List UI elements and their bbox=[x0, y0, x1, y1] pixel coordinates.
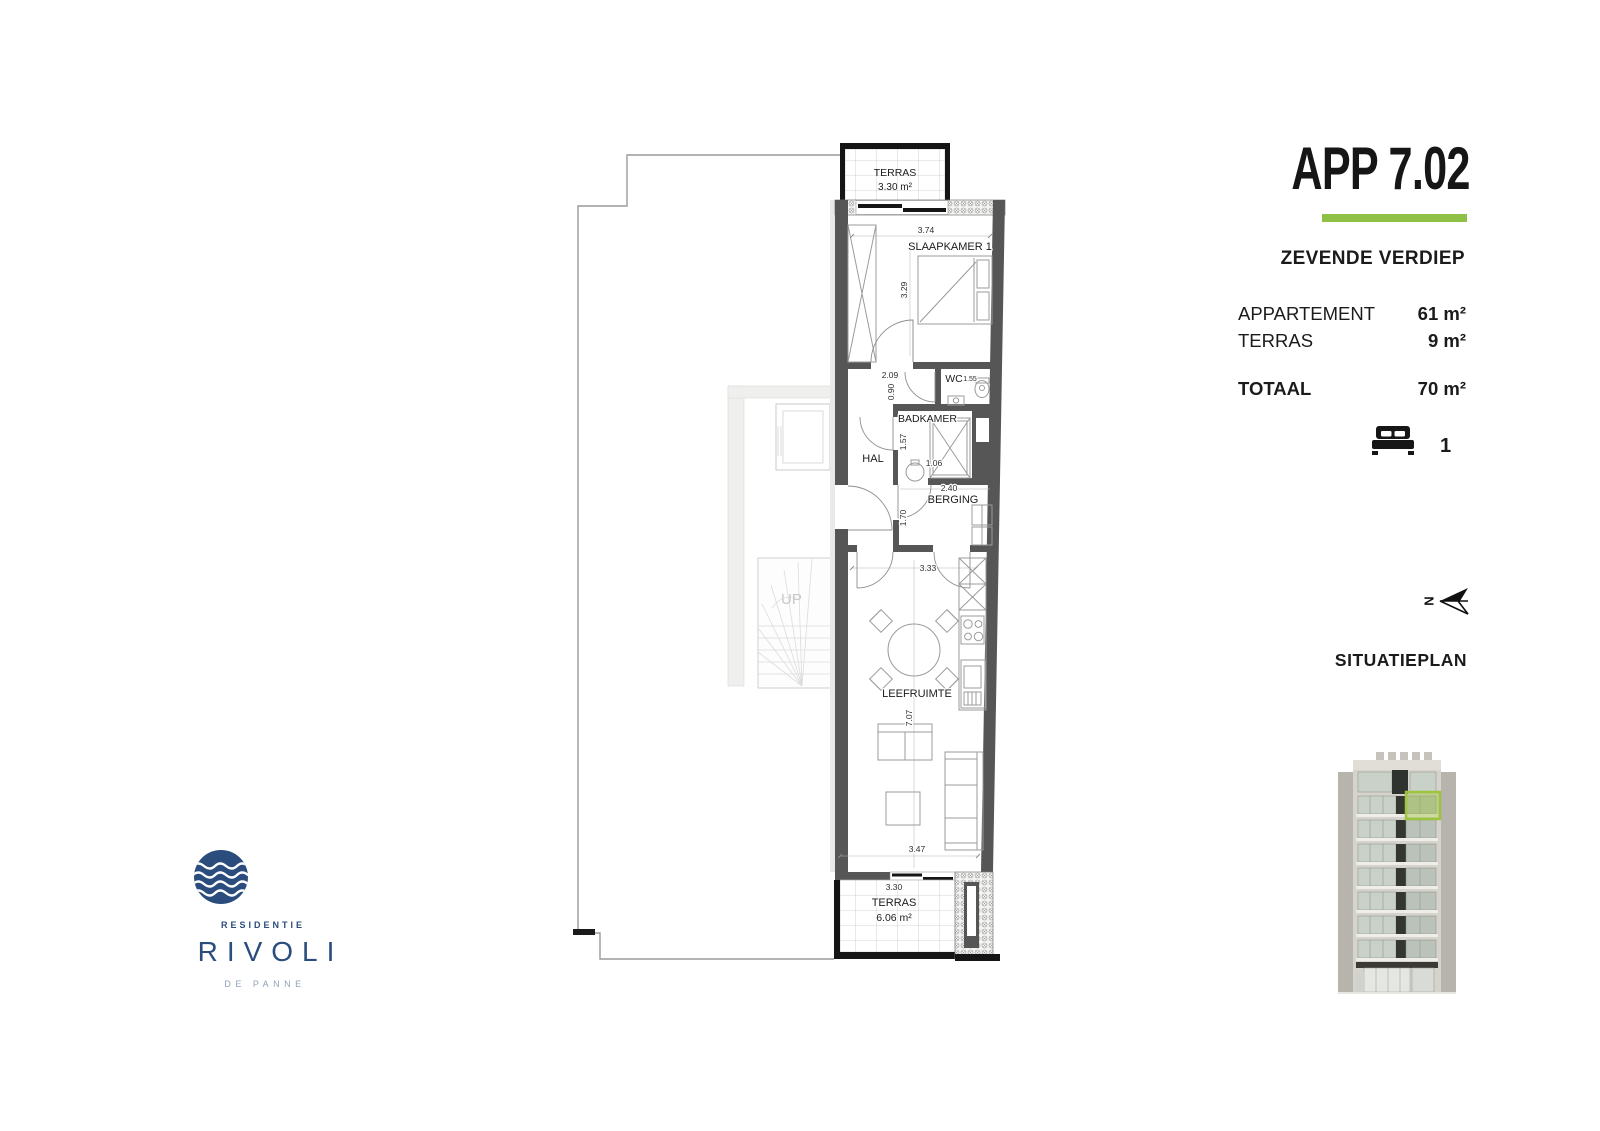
bed-icon bbox=[1372, 426, 1414, 456]
terrace-top-area: 3.30 m² bbox=[878, 182, 913, 193]
terrace-bottom bbox=[834, 872, 1000, 961]
situatieplan-label: SITUATIEPLAN bbox=[1335, 650, 1467, 671]
stairs-up-label: UP bbox=[781, 591, 802, 608]
wc-label: WC bbox=[945, 373, 963, 385]
logo-city: DE PANNE bbox=[183, 979, 343, 989]
bedroom-count: 1 bbox=[1440, 436, 1451, 456]
elevator bbox=[776, 404, 830, 470]
total-label: TOTAAL bbox=[1238, 378, 1311, 400]
dim-leefruimte-top: 3.33 bbox=[920, 563, 937, 573]
north-letter: N bbox=[1422, 596, 1437, 605]
staircase bbox=[758, 558, 835, 688]
bedroom-count-row: 1 bbox=[1372, 426, 1451, 456]
floor-plan-svg: UP TERRAS 3.30 m² bbox=[540, 130, 1020, 970]
berging-label: BERGING bbox=[928, 494, 979, 506]
dim-berging-w: 2.40 bbox=[941, 483, 958, 493]
area-label: TERRAS bbox=[1238, 330, 1313, 352]
apartment-title: APP 7.02 bbox=[1292, 134, 1470, 203]
dim-wc: 1.55 bbox=[963, 376, 977, 383]
waves-logo-icon bbox=[193, 849, 249, 905]
accent-bar bbox=[1322, 214, 1467, 222]
logo-name: RIVOLI bbox=[136, 936, 396, 968]
north-arrow-icon: N bbox=[1418, 584, 1472, 618]
building-floors bbox=[1356, 796, 1438, 961]
dim-hal-w: 2.09 bbox=[882, 370, 899, 380]
slaapkamer-label: SLAAPKAMER 1 bbox=[908, 241, 992, 253]
dim-terras-bottom: 3.30 bbox=[886, 882, 903, 892]
storey-outline bbox=[573, 155, 840, 959]
dim-berging-h: 1.70 bbox=[898, 509, 908, 526]
highlighted-unit bbox=[1406, 792, 1440, 819]
dim-leefruimte-bottom: 3.47 bbox=[909, 844, 926, 854]
leefruimte-label: LEEFRUIMTE bbox=[882, 688, 952, 700]
area-row-total: TOTAAL 70 m² bbox=[1238, 378, 1466, 400]
terrace-top-label: TERRAS bbox=[874, 167, 917, 179]
terras-bottom-label: TERRAS bbox=[872, 897, 917, 909]
area-table: APPARTEMENT 61 m² TERRAS 9 m² TOTAAL 70 … bbox=[1238, 303, 1466, 405]
area-row-terras: TERRAS 9 m² bbox=[1238, 330, 1466, 352]
area-value: 61 m² bbox=[1418, 303, 1466, 325]
area-value: 9 m² bbox=[1428, 330, 1466, 352]
hal-label: HAL bbox=[862, 453, 883, 465]
floor-plan: UP TERRAS 3.30 m² bbox=[540, 130, 1020, 975]
dim-hal-h: 0.90 bbox=[886, 383, 896, 400]
terrace-top: TERRAS 3.30 m² bbox=[840, 143, 950, 200]
dim-badkamer-h: 1.57 bbox=[898, 433, 908, 450]
building-elevation bbox=[1338, 752, 1456, 999]
common-core: UP bbox=[728, 386, 836, 688]
floor-label: ZEVENDE VERDIEP bbox=[1281, 248, 1465, 270]
brand-logo: RESIDENTIE RIVOLI DE PANNE bbox=[120, 840, 380, 1010]
area-row-appartement: APPARTEMENT 61 m² bbox=[1238, 303, 1466, 325]
badkamer-label: BADKAMER bbox=[898, 413, 957, 425]
dim-badkamer-w: 1.06 bbox=[926, 458, 943, 468]
logo-residentie: RESIDENTIE bbox=[183, 920, 343, 930]
total-value: 70 m² bbox=[1418, 378, 1466, 400]
terras-bottom-area: 6.06 m² bbox=[876, 912, 912, 924]
dim-leefruimte-h: 7.07 bbox=[904, 709, 914, 726]
dim-slaapkamer-w: 3.74 bbox=[918, 225, 935, 235]
dim-slaapkamer-h: 3.29 bbox=[899, 281, 909, 298]
page: UP TERRAS 3.30 m² bbox=[0, 0, 1600, 1131]
area-label: APPARTEMENT bbox=[1238, 303, 1375, 325]
